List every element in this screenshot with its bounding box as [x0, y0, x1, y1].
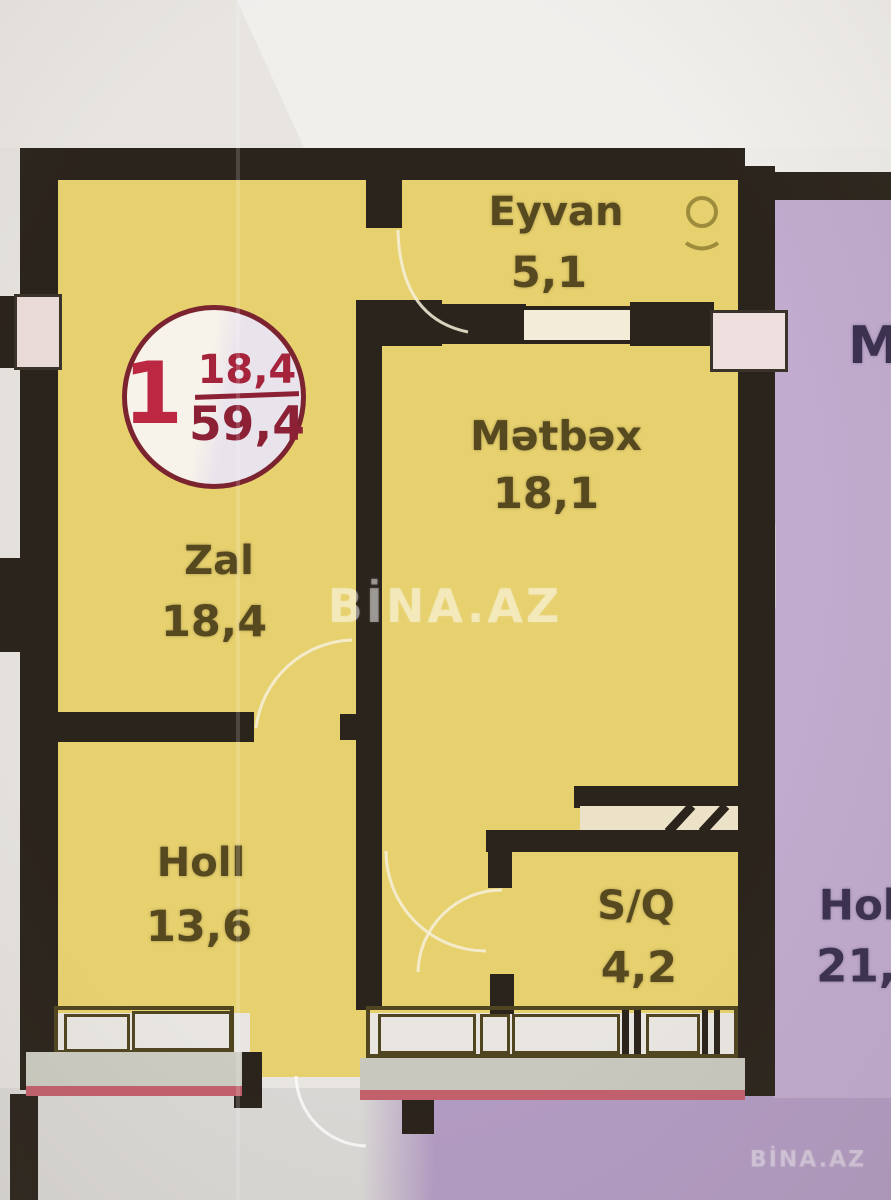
door-arc-zal-holl [256, 640, 352, 728]
room-area-eyvan: 5,1 [511, 248, 587, 298]
room-label-holl: Holl [157, 840, 245, 886]
neighbor-room-label-hall: Hol [819, 881, 891, 930]
unit-living-area: 18,4 [198, 349, 297, 391]
eyvan-symbol-icon-arc [686, 243, 718, 249]
door-arc-sq [418, 890, 502, 972]
door-arc-metbex-holl [386, 851, 486, 951]
watermark-center: BİNA.AZ [328, 579, 563, 633]
room-label-sq: S/Q [597, 883, 674, 929]
room-area-metbex: 18,1 [493, 469, 599, 519]
unit-total-area: 59,4 [189, 400, 305, 449]
neighbor-room-label-kitchen: M [848, 316, 891, 376]
unit-info-badge: 1 18,4 59,4 [122, 305, 306, 489]
room-label-zal: Zal [184, 538, 254, 584]
neighbor-room-area-hall: 21, [816, 940, 891, 993]
room-label-metbex: Mətbəx [470, 412, 642, 460]
vent-shaft-hatch-2 [702, 806, 726, 832]
room-area-sq: 4,2 [601, 943, 677, 993]
room-area-zal: 18,4 [161, 597, 267, 647]
unit-number: 1 [123, 351, 183, 437]
watermark-corner: BİNA.AZ [750, 1148, 866, 1173]
floorplan-photo: 1 18,4 59,4 Eyvan 5,1 Mətbəx 18,1 Zal 18… [0, 0, 891, 1200]
door-arc-balcony [296, 1076, 366, 1146]
photo-crease [236, 0, 240, 1200]
eyvan-symbol-icon [688, 198, 716, 226]
room-label-eyvan: Eyvan [489, 189, 624, 235]
vent-shaft-hatch-1 [668, 806, 692, 832]
unit-area-fraction: 18,4 59,4 [189, 349, 305, 449]
door-arc-eyvan [398, 230, 468, 332]
